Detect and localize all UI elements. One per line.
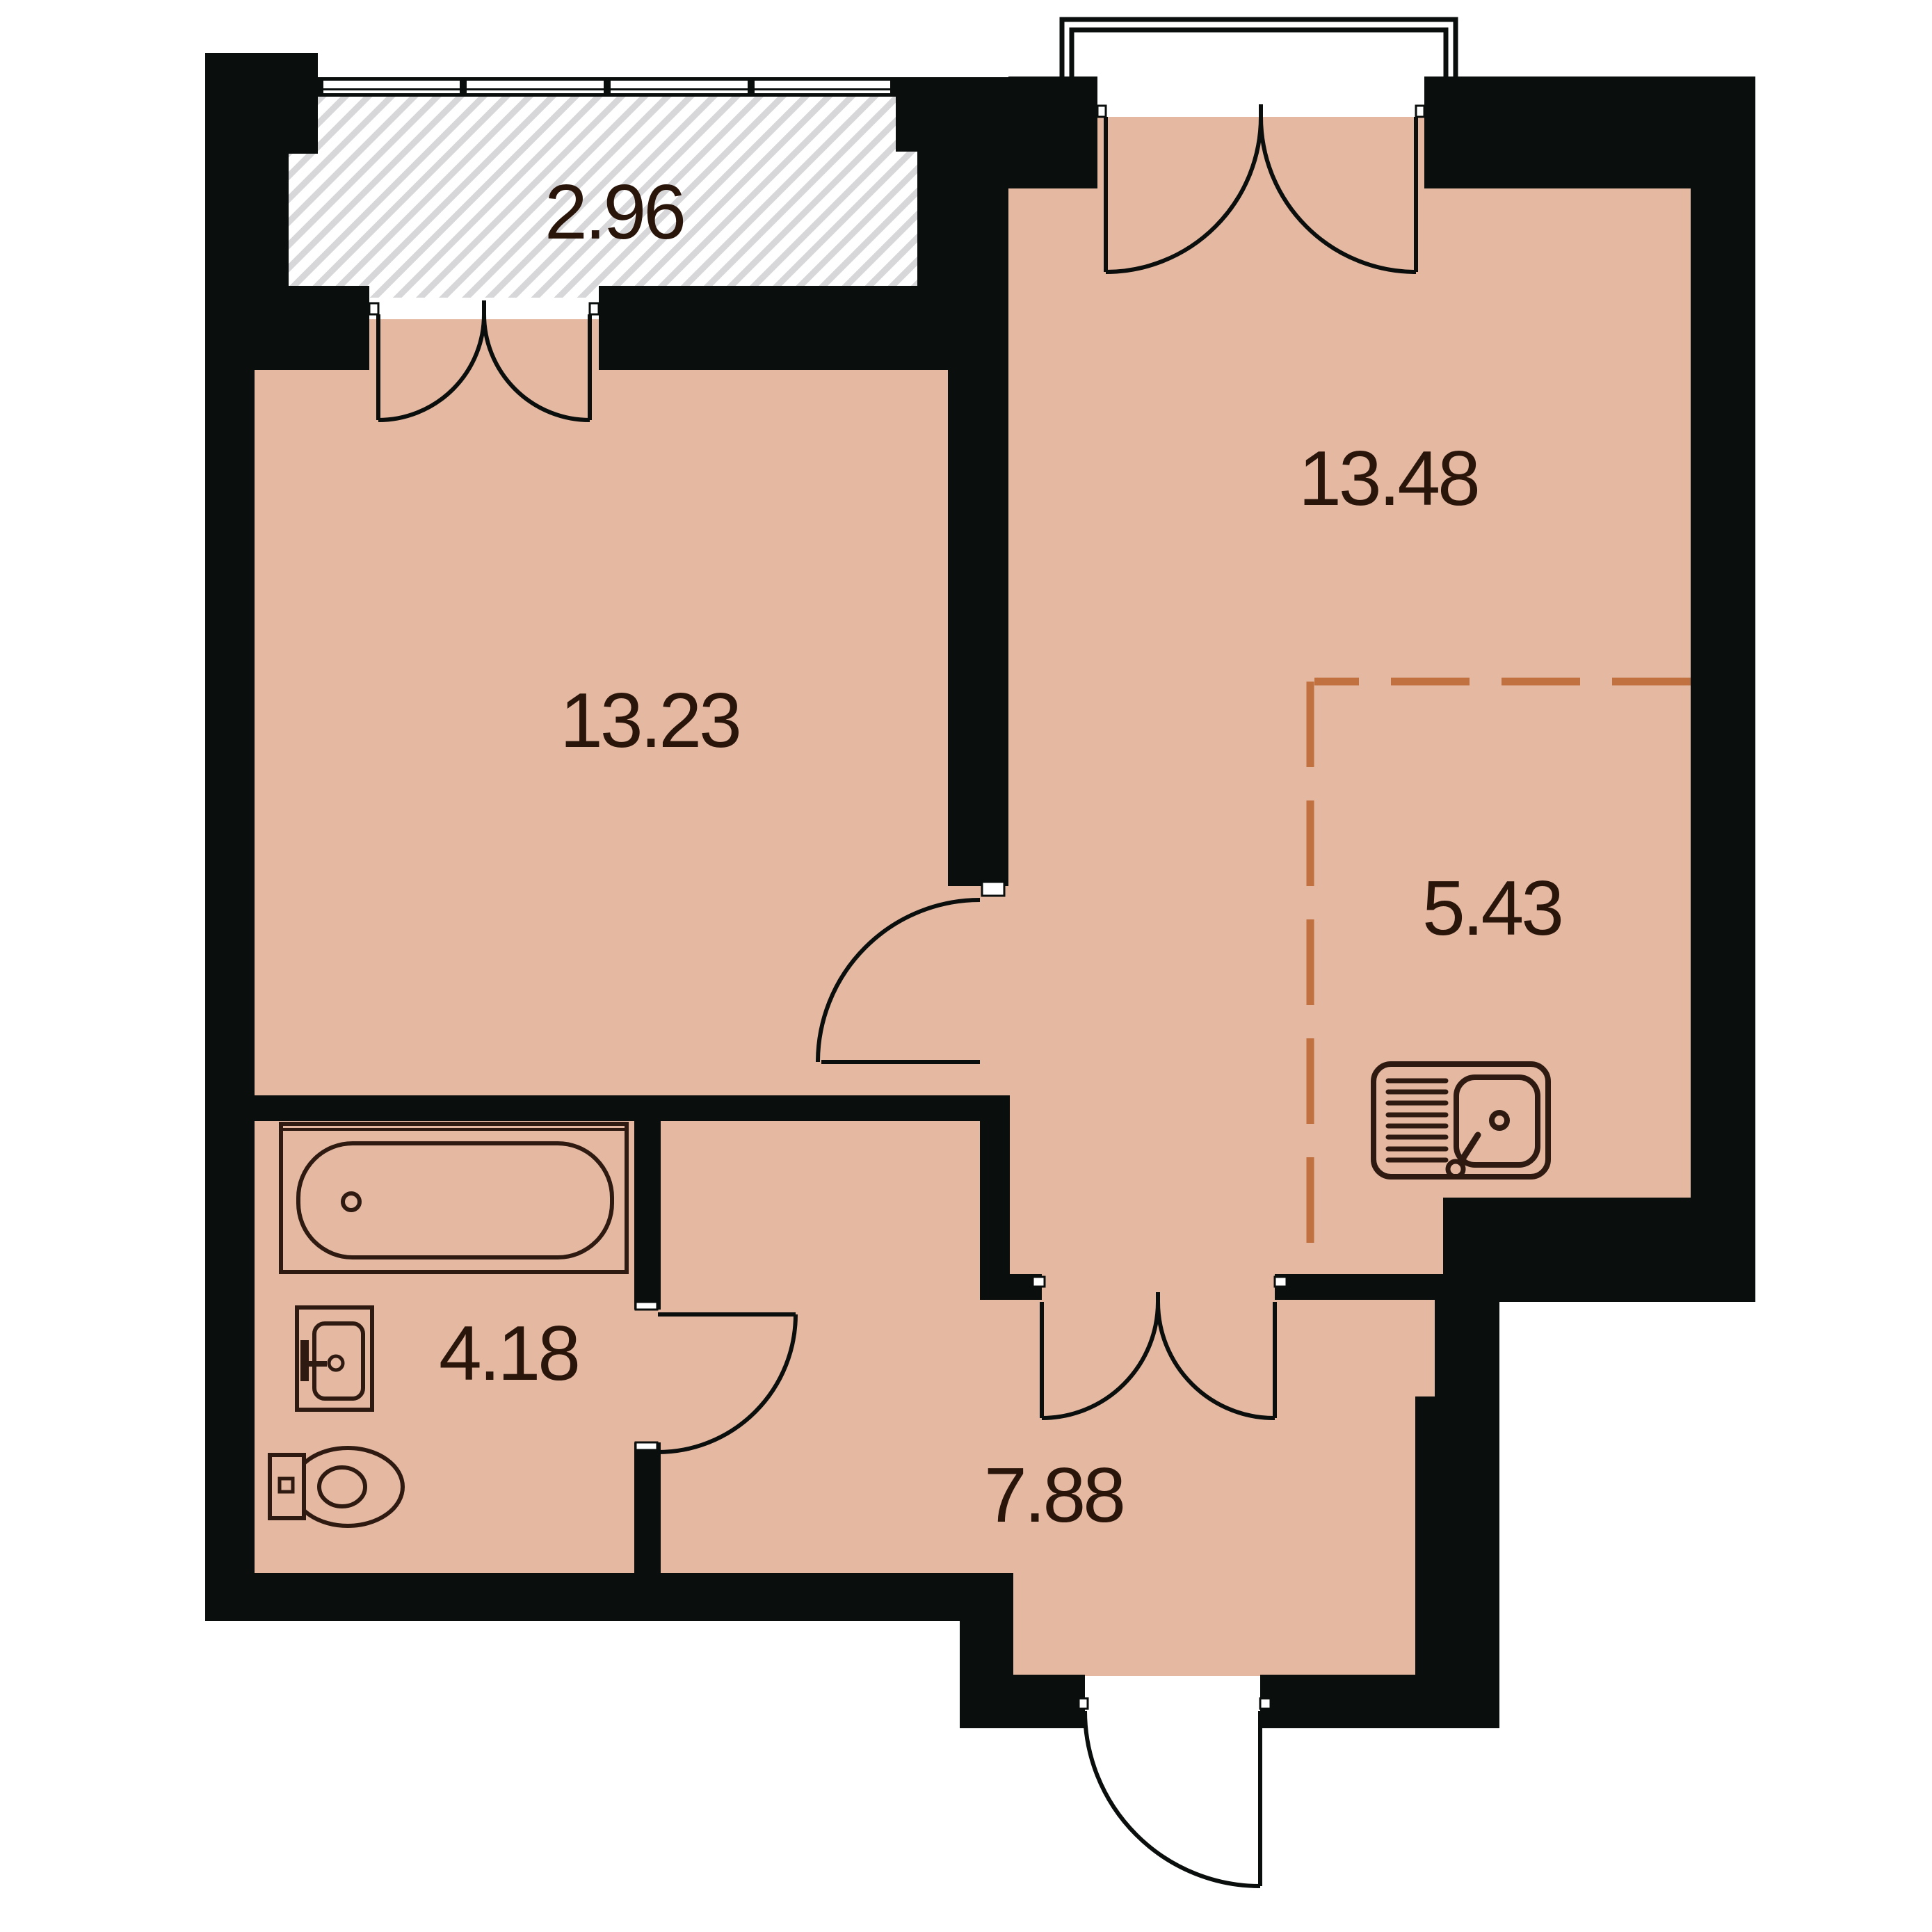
svg-text:5.43: 5.43: [1422, 865, 1561, 951]
svg-text:13.23: 13.23: [560, 677, 739, 764]
svg-text:2.96: 2.96: [545, 169, 684, 255]
svg-text:13.48: 13.48: [1298, 435, 1478, 522]
svg-text:7.88: 7.88: [984, 1452, 1123, 1538]
svg-text:4.18: 4.18: [439, 1310, 578, 1396]
